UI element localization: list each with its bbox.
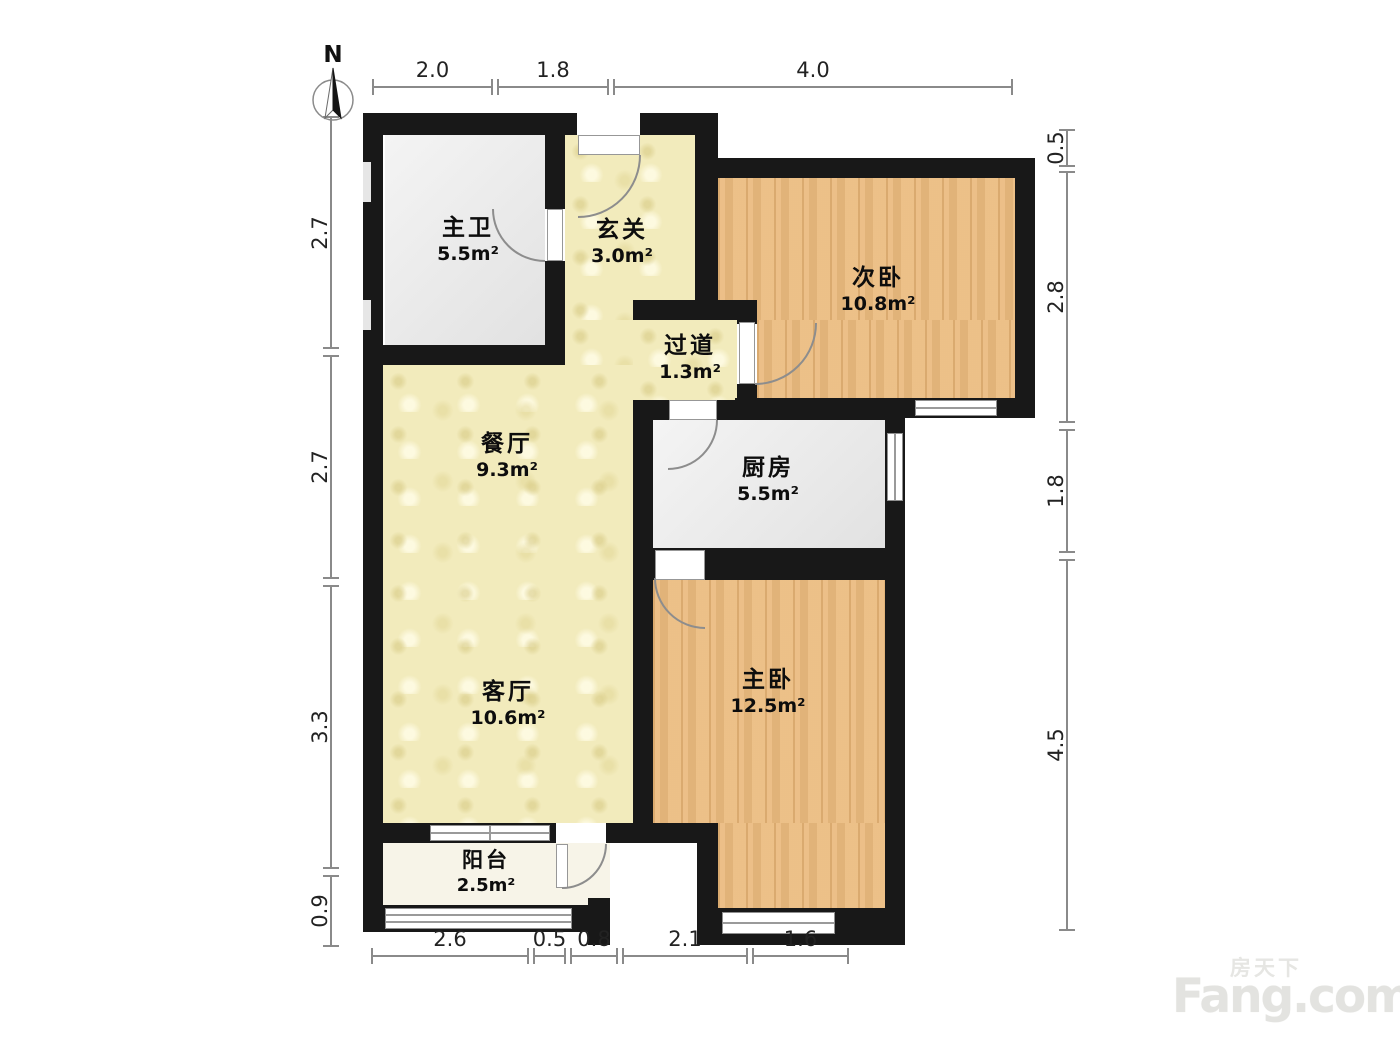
dimension-value: 1.6: [784, 927, 817, 951]
dimension-top-1: 2.0: [373, 86, 492, 88]
dimension-left-2: 2.7: [330, 356, 332, 578]
dimension-value: 4.0: [796, 58, 829, 82]
secondary-bedroom-door-arc: [755, 323, 816, 384]
dimension-bottom-3: 0.8: [571, 955, 617, 957]
dimension-right-2: 2.8: [1066, 172, 1068, 422]
entrance-door-arc: [578, 155, 640, 217]
dimension-value: 0.5: [533, 927, 566, 951]
room-area: 1.3m²: [620, 361, 760, 383]
dimension-bottom-2: 0.5: [534, 955, 565, 957]
dimension-right-4: 4.5: [1066, 560, 1068, 930]
dimension-value: 0.8: [577, 927, 610, 951]
dimension-top-2: 1.8: [498, 86, 608, 88]
dimension-value: 0.9: [309, 889, 331, 933]
room-name: 客厅: [438, 672, 578, 706]
dimension-top-3: 4.0: [614, 86, 1012, 88]
label-corridor: 过道 1.3m²: [620, 326, 760, 383]
dimension-value: 1.8: [536, 58, 569, 82]
dimension-value: 2.7: [309, 211, 331, 255]
room-name: 主卫: [398, 208, 538, 242]
label-secondary-bedroom: 次卧 10.8m²: [808, 258, 948, 315]
dimension-value: 2.7: [309, 445, 331, 489]
room-area: 12.5m²: [698, 695, 838, 717]
dimension-value: 0.5: [1045, 126, 1067, 170]
north-arrow-icon: [325, 68, 333, 118]
north-arrow-icon: [333, 68, 341, 118]
dimension-value: 3.3: [309, 705, 331, 749]
label-master-bedroom: 主卧 12.5m²: [698, 660, 838, 717]
master-bedroom-door-arc: [655, 578, 705, 628]
dimension-value: 2.0: [416, 58, 449, 82]
room-name: 阳台: [416, 844, 556, 874]
dimension-bottom-4: 2.1: [623, 955, 747, 957]
dimension-left-4: 0.9: [330, 876, 332, 946]
dimension-value: 1.8: [1045, 469, 1067, 513]
room-area: 3.0m²: [552, 245, 692, 267]
watermark-fang-logo: 房天下 Fang.com: [1172, 958, 1392, 1020]
room-name: 厨房: [698, 448, 838, 482]
dimension-value: 2.6: [433, 927, 466, 951]
floor-plan: 主卫 5.5m² 玄关 3.0m² 次卧 10.8m² 过道 1.3m² 餐厅 …: [0, 0, 1400, 1039]
room-name: 餐厅: [437, 424, 577, 458]
compass-icon: [307, 60, 359, 126]
dimension-right-1: 0.5: [1066, 130, 1068, 166]
label-bathroom: 主卫 5.5m²: [398, 208, 538, 265]
watermark-en-text: Fang.com: [1172, 973, 1392, 1020]
room-name: 次卧: [808, 258, 948, 292]
dimension-right-3: 1.8: [1066, 430, 1068, 552]
room-area: 5.5m²: [398, 243, 538, 265]
label-living-room: 客厅 10.6m²: [438, 672, 578, 729]
dimension-bottom-5: 1.6: [753, 955, 848, 957]
room-area: 10.6m²: [438, 707, 578, 729]
dimension-value: 2.8: [1045, 275, 1067, 319]
dimension-left-3: 3.3: [330, 586, 332, 868]
label-balcony: 阳台 2.5m²: [416, 844, 556, 896]
room-area: 5.5m²: [698, 483, 838, 505]
dimension-value: 4.5: [1045, 723, 1067, 767]
dimension-left-1: 2.7: [330, 117, 332, 348]
room-name: 玄关: [552, 210, 692, 244]
dimension-bottom-1: 2.6: [372, 955, 528, 957]
door-arcs-layer: [0, 0, 1400, 1039]
room-name: 过道: [620, 326, 760, 360]
room-area: 2.5m²: [416, 875, 556, 896]
room-area: 9.3m²: [437, 459, 577, 481]
room-area: 10.8m²: [808, 293, 948, 315]
dimension-value: 2.1: [668, 927, 701, 951]
label-kitchen: 厨房 5.5m²: [698, 448, 838, 505]
room-name: 主卧: [698, 660, 838, 694]
label-dining-room: 餐厅 9.3m²: [437, 424, 577, 481]
label-entry-hall: 玄关 3.0m²: [552, 210, 692, 267]
balcony-door-arc: [562, 844, 606, 888]
